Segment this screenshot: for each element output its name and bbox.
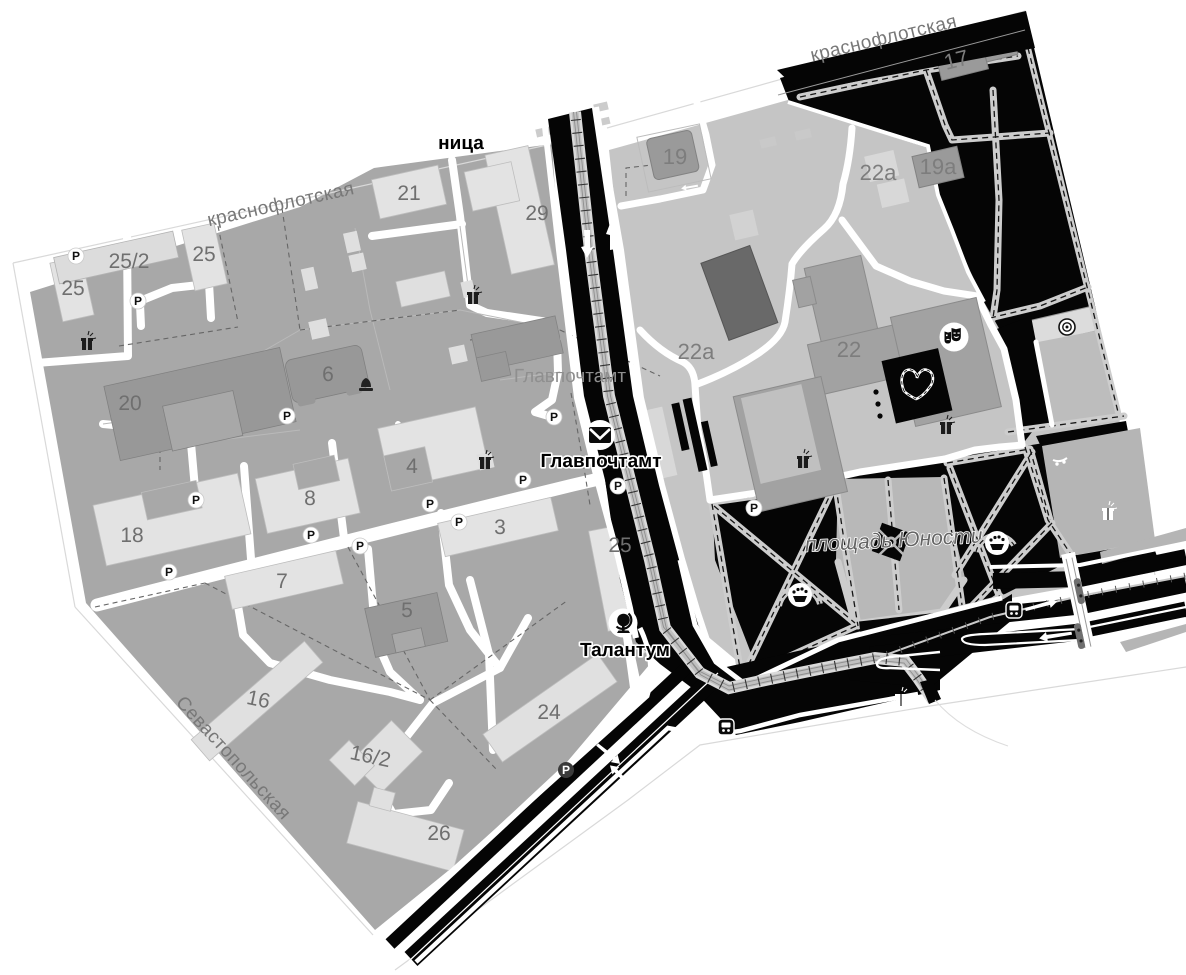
svg-text:4: 4 (406, 455, 418, 478)
svg-text:ница: ница (438, 133, 484, 154)
svg-text:25: 25 (608, 534, 631, 557)
svg-text:P: P (307, 528, 315, 542)
svg-text:16: 16 (245, 686, 273, 713)
svg-text:5: 5 (401, 599, 413, 622)
svg-text:8: 8 (304, 487, 316, 510)
svg-text:25: 25 (192, 243, 215, 266)
svg-text:22: 22 (837, 337, 861, 362)
svg-text:25/2: 25/2 (109, 250, 150, 273)
svg-text:3: 3 (494, 516, 506, 539)
svg-text:P: P (283, 409, 291, 423)
svg-text:21: 21 (397, 182, 420, 205)
svg-text:Главпочтамт: Главпочтамт (514, 366, 626, 387)
svg-text:Талантум: Талантум (580, 640, 670, 661)
svg-text:P: P (562, 763, 570, 777)
svg-text:P: P (519, 473, 527, 487)
svg-text:22а: 22а (860, 160, 897, 185)
svg-text:19а: 19а (920, 154, 957, 179)
svg-text:P: P (165, 565, 173, 579)
svg-text:P: P (614, 479, 622, 493)
svg-text:P: P (455, 515, 463, 529)
svg-text:26: 26 (427, 822, 450, 845)
svg-text:P: P (72, 249, 80, 263)
svg-text:25: 25 (61, 277, 84, 300)
svg-text:22а: 22а (678, 339, 715, 364)
svg-text:20: 20 (118, 392, 141, 415)
svg-text:18: 18 (120, 524, 143, 547)
svg-text:24: 24 (537, 701, 561, 724)
svg-text:P: P (192, 493, 200, 507)
svg-text:6: 6 (322, 363, 334, 386)
svg-text:P: P (134, 294, 142, 308)
svg-text:P: P (550, 410, 558, 424)
svg-text:29: 29 (525, 202, 548, 225)
svg-text:P: P (426, 497, 434, 511)
svg-text:P: P (750, 501, 758, 515)
svg-text:7: 7 (276, 570, 288, 593)
svg-text:19: 19 (663, 144, 687, 169)
svg-text:P: P (356, 539, 364, 553)
svg-text:Главпочтамт: Главпочтамт (540, 451, 661, 472)
